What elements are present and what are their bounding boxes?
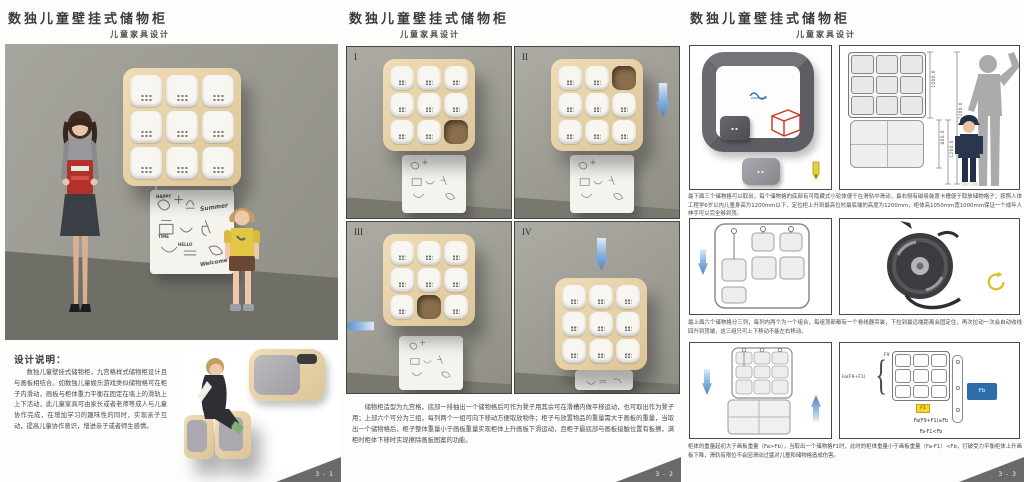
drawing-board: [399, 336, 463, 390]
empty-slot: [612, 66, 636, 90]
page-subtitle: 儿童家具设计: [686, 29, 966, 40]
view-label: III: [354, 227, 363, 237]
storage-cell: [130, 147, 162, 179]
storage-cell: [612, 120, 636, 144]
brace: {: [875, 355, 887, 397]
drawing-board: [570, 155, 634, 213]
page-title: 数独儿童壁挂式储物柜: [8, 8, 168, 27]
storage-cell: [562, 285, 586, 309]
storage-cell: [444, 241, 468, 265]
view-frame-2: II: [514, 46, 680, 219]
page-number: 3 - 1: [315, 471, 334, 478]
stool-photo: [183, 345, 339, 471]
hero-photo: HAPPY Summer HELLO TIME Welcome: [5, 44, 338, 340]
view-label: II: [522, 52, 528, 62]
empty-slot: [417, 295, 441, 319]
storage-cabinet: [555, 278, 647, 370]
dim-board-height: 800.0: [940, 130, 945, 145]
empty-slot: [444, 120, 468, 144]
force-cell-label: F9: [884, 353, 890, 358]
page-title: 数独儿童壁挂式储物柜: [690, 8, 850, 27]
board-weight: Fb: [967, 383, 997, 400]
view-frame-1: I: [346, 46, 512, 219]
views-caption: 储物柜造型为九宫格，底部一排抽出一个储物格后可作为凳子用其余可在滑槽内做平移运动…: [352, 402, 674, 446]
down-arrow-icon: [656, 83, 670, 117]
storage-cell: [417, 268, 441, 292]
design-notes-heading: 设计说明：: [14, 352, 67, 366]
stool-box-large: [249, 349, 325, 401]
nine-grid: [892, 351, 950, 401]
frame-motion-diagram: [689, 342, 832, 439]
drawing-board: [402, 155, 466, 213]
page-number: 3 - 3: [998, 471, 1017, 478]
page-subtitle: 儿童家具设计: [0, 29, 280, 40]
cabinet-grid: [130, 75, 234, 179]
motion-line-drawing: [720, 346, 804, 436]
page-corner: 3 - 2: [616, 457, 681, 482]
left-arrow-icon: [346, 319, 374, 333]
storage-cell: [589, 339, 613, 363]
page-corner: 3 - 3: [959, 457, 1024, 482]
storage-cell: [166, 147, 198, 179]
stool-handle-hole: [297, 354, 317, 364]
sitting-boy-figure: [185, 355, 245, 455]
storage-box: [720, 116, 750, 140]
storage-cell: [166, 111, 198, 143]
frame-force-diagram: { Fa(F9+F1) F9 F1 Fb Fa(F9+F1)≥Fb Fa-F1<…: [839, 342, 1020, 439]
down-arrow-icon: [702, 369, 712, 395]
drawing-board: [575, 370, 633, 390]
storage-cell: [585, 93, 609, 117]
note-2: 最上面六个储物格分三列，每列内两个为一个组合，每组顶部都有一个卷线器吊装，下拉到…: [688, 319, 1022, 336]
page-subtitle: 儿童家具设计: [345, 29, 515, 40]
board-front-view: [850, 120, 924, 168]
storage-cell: [558, 120, 582, 144]
note-3: 柜体的重量起初大于画板重量（Fa>Fb），当取出一个储物格F1时，此时的柜体重量…: [688, 443, 1022, 460]
view-label: IV: [522, 227, 532, 237]
storage-cell: [444, 66, 468, 90]
force-formula-removed: Fa-F1<Fb: [876, 430, 986, 435]
view-label: I: [354, 52, 357, 62]
storage-cell: [202, 111, 234, 143]
storage-cell: [390, 66, 414, 90]
boy-figure: [219, 204, 265, 320]
down-arrow-icon: [698, 249, 708, 275]
storage-box: [742, 158, 780, 185]
storage-cell: [417, 241, 441, 265]
view-frame-3: III: [346, 221, 512, 394]
brand-logo: [748, 90, 772, 100]
design-notes-text: 数独儿童壁挂式储物柜，九宫格样式储物柜设计且与画板相结合。如数独儿童娱乐游戏类似…: [14, 368, 167, 433]
board-word: TIME: [158, 234, 169, 239]
storage-cell: [130, 75, 162, 107]
storage-cell: [417, 120, 441, 144]
storage-cabinet: [123, 68, 241, 186]
cabinet-front-view: [848, 52, 926, 118]
panel-left: 数独儿童壁挂式储物柜 儿童家具设计: [0, 0, 341, 482]
view-frame-4: IV: [514, 221, 680, 394]
removed-cell-weight: F1: [916, 404, 930, 413]
storage-cell: [390, 241, 414, 265]
cable-reel: [860, 219, 980, 315]
frame-cable-reel: [839, 218, 1020, 315]
up-arrow-icon: [811, 395, 821, 421]
storage-cell: [589, 285, 613, 309]
storage-cell: [390, 120, 414, 144]
down-arrow-icon: [594, 238, 609, 270]
child-figure: [952, 114, 986, 188]
storage-cell: [616, 285, 640, 309]
storage-cell: [130, 111, 162, 143]
storage-cell: [202, 75, 234, 107]
storage-cell: [616, 312, 640, 336]
board-word: HAPPY: [156, 194, 171, 199]
presentation-board: 数独儿童壁挂式储物柜 儿童家具设计: [0, 0, 1024, 482]
storage-cell: [585, 120, 609, 144]
storage-cell: [558, 66, 582, 90]
dim-cabinet-height: 1000.0: [931, 70, 936, 88]
force-brace-label: Fa(F9+F1): [842, 375, 866, 380]
storage-cell: [444, 93, 468, 117]
storage-cell: [390, 93, 414, 117]
storage-cabinet: [551, 59, 643, 151]
storage-cell: [417, 66, 441, 90]
storage-cell: [558, 93, 582, 117]
storage-cell: [417, 93, 441, 117]
storage-cell: [202, 147, 234, 179]
cabinet-line-drawing: [714, 223, 810, 311]
woman-figure: [49, 108, 111, 320]
storage-cabinet: [383, 59, 475, 151]
red-wireframe-box: [766, 106, 804, 140]
frame-dimension-drawing: 1000.0 800.0 1200.0 2200.0: [839, 45, 1020, 190]
storage-cell: [585, 66, 609, 90]
storage-cell: [562, 312, 586, 336]
page-number: 3 - 2: [655, 471, 674, 478]
storage-cabinet: [383, 234, 475, 326]
frame-shell-render: [689, 45, 832, 190]
panel-right: 数独儿童壁挂式储物柜 儿童家具设计: [686, 0, 1024, 482]
board-word: HELLO: [178, 242, 192, 247]
pencil-icon: [809, 160, 823, 180]
storage-cell: [589, 312, 613, 336]
storage-cell: [444, 295, 468, 319]
storage-cell: [390, 268, 414, 292]
storage-cell: [562, 339, 586, 363]
page-title: 数独儿童壁挂式储物柜: [349, 8, 509, 27]
force-formula-full: Fa(F9+F1)≥Fb: [876, 419, 986, 424]
rotation-arrow-icon: [986, 271, 1008, 293]
storage-cell: [166, 75, 198, 107]
panel-middle: 数独儿童壁挂式储物柜 儿童家具设计 I: [345, 0, 681, 482]
frame-sliding-drawing: [689, 218, 832, 315]
board-edge-bar: [952, 355, 963, 423]
note-1: 最下面三个储物格可以取出，每个储物格的底部有可隐藏式小轮体便于在滑轨中滑动，最右…: [688, 193, 1022, 219]
storage-cell: [612, 93, 636, 117]
storage-cell: [444, 268, 468, 292]
storage-cell: [390, 295, 414, 319]
stool-front-panel: [254, 355, 300, 395]
storage-cell: [616, 339, 640, 363]
